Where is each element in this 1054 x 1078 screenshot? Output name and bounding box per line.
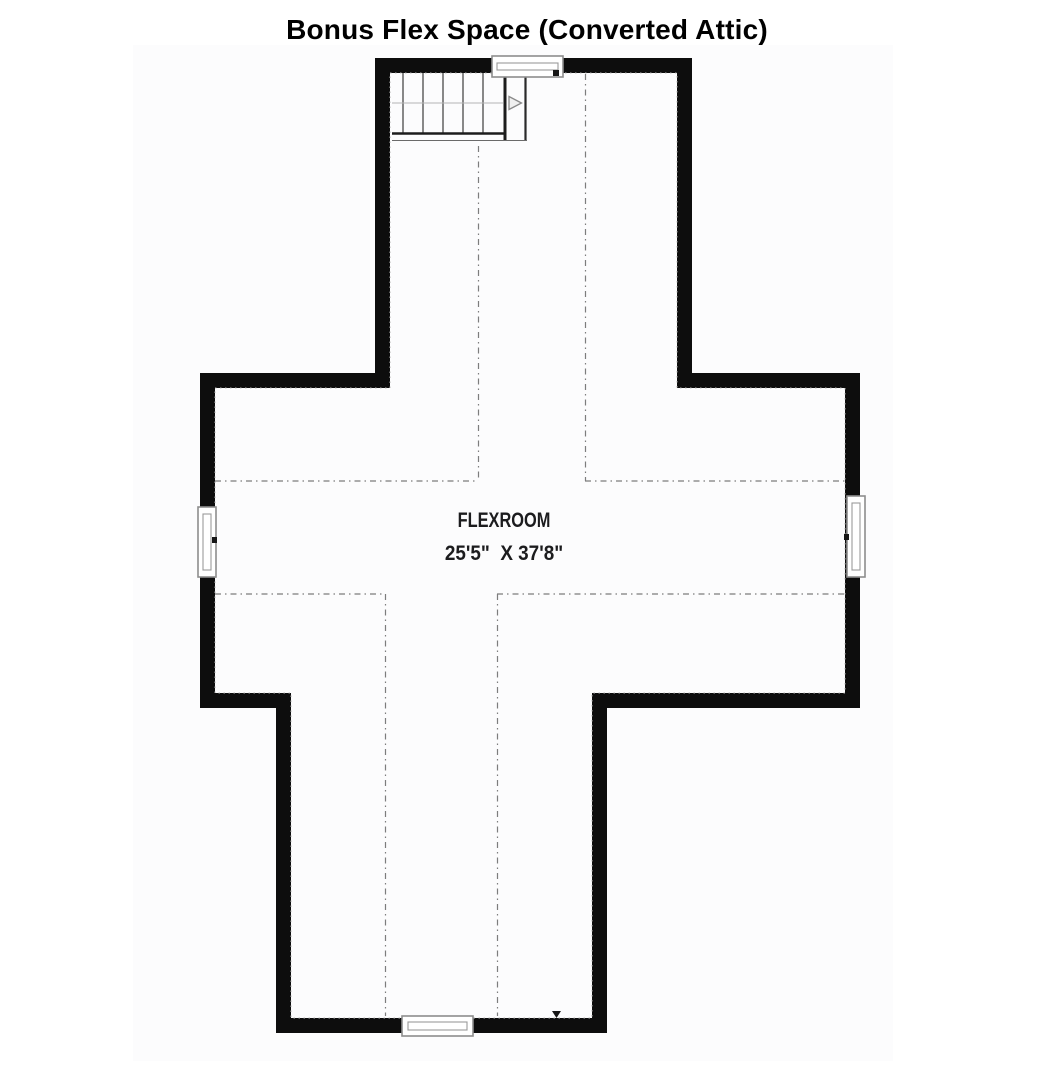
window-glass-line (408, 1022, 467, 1030)
floor-plan-page: Bonus Flex Space (Converted Attic) (0, 0, 1054, 1078)
window-handle-mark (212, 537, 217, 543)
room-dimensions-label: 25'5" X 37'8" (414, 542, 594, 566)
window-top (492, 56, 563, 77)
window-left (198, 507, 217, 577)
window-glass-line (852, 503, 860, 570)
window-glass-line (203, 514, 211, 570)
window-glass-line (497, 63, 558, 70)
window-handle-mark (844, 534, 849, 540)
window-right (844, 496, 865, 577)
window-bottom (402, 1016, 473, 1036)
floor-plan-drawing (0, 0, 1054, 1078)
room-name-label: FLEXROOM (426, 509, 582, 533)
window-corner-mark (553, 70, 559, 76)
